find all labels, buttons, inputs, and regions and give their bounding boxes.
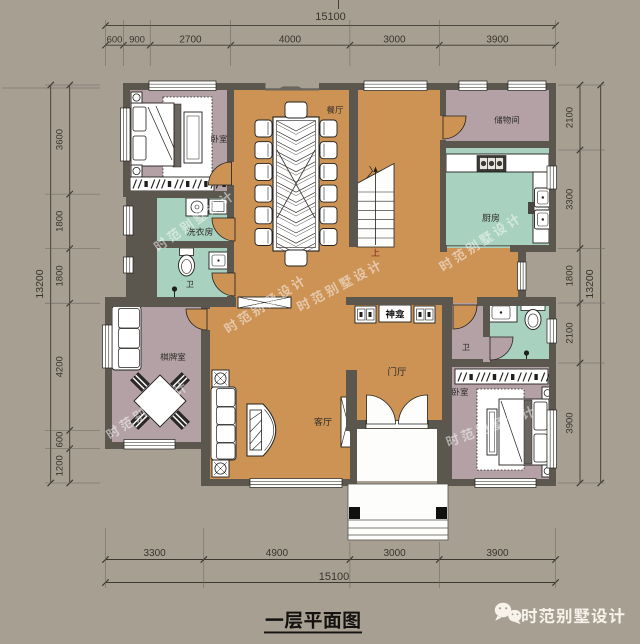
svg-text:2100: 2100 <box>565 107 576 128</box>
svg-text:3900: 3900 <box>486 548 509 559</box>
svg-text:4000: 4000 <box>279 35 302 46</box>
svg-text:15100: 15100 <box>319 571 350 583</box>
svg-text:2700: 2700 <box>179 35 202 46</box>
svg-text:1800: 1800 <box>55 265 66 286</box>
svg-text:3600: 3600 <box>55 129 66 150</box>
svg-text:1800: 1800 <box>565 265 576 286</box>
svg-text:900: 900 <box>129 35 145 46</box>
svg-text:4900: 4900 <box>266 548 289 559</box>
svg-text:15100: 15100 <box>315 11 346 23</box>
svg-text:3000: 3000 <box>383 548 406 559</box>
svg-text:1200: 1200 <box>55 455 66 476</box>
svg-text:3900: 3900 <box>565 412 576 433</box>
svg-text:3300: 3300 <box>143 548 166 559</box>
svg-text:2100: 2100 <box>565 322 576 343</box>
svg-text:600: 600 <box>55 432 66 448</box>
svg-text:4200: 4200 <box>55 356 66 377</box>
svg-text:600: 600 <box>107 35 123 46</box>
svg-text:3000: 3000 <box>383 35 406 46</box>
svg-text:3300: 3300 <box>565 189 576 210</box>
svg-text:13200: 13200 <box>34 269 46 298</box>
svg-text:1800: 1800 <box>55 211 66 232</box>
svg-text:3900: 3900 <box>486 35 509 46</box>
svg-text:13200: 13200 <box>584 269 596 298</box>
